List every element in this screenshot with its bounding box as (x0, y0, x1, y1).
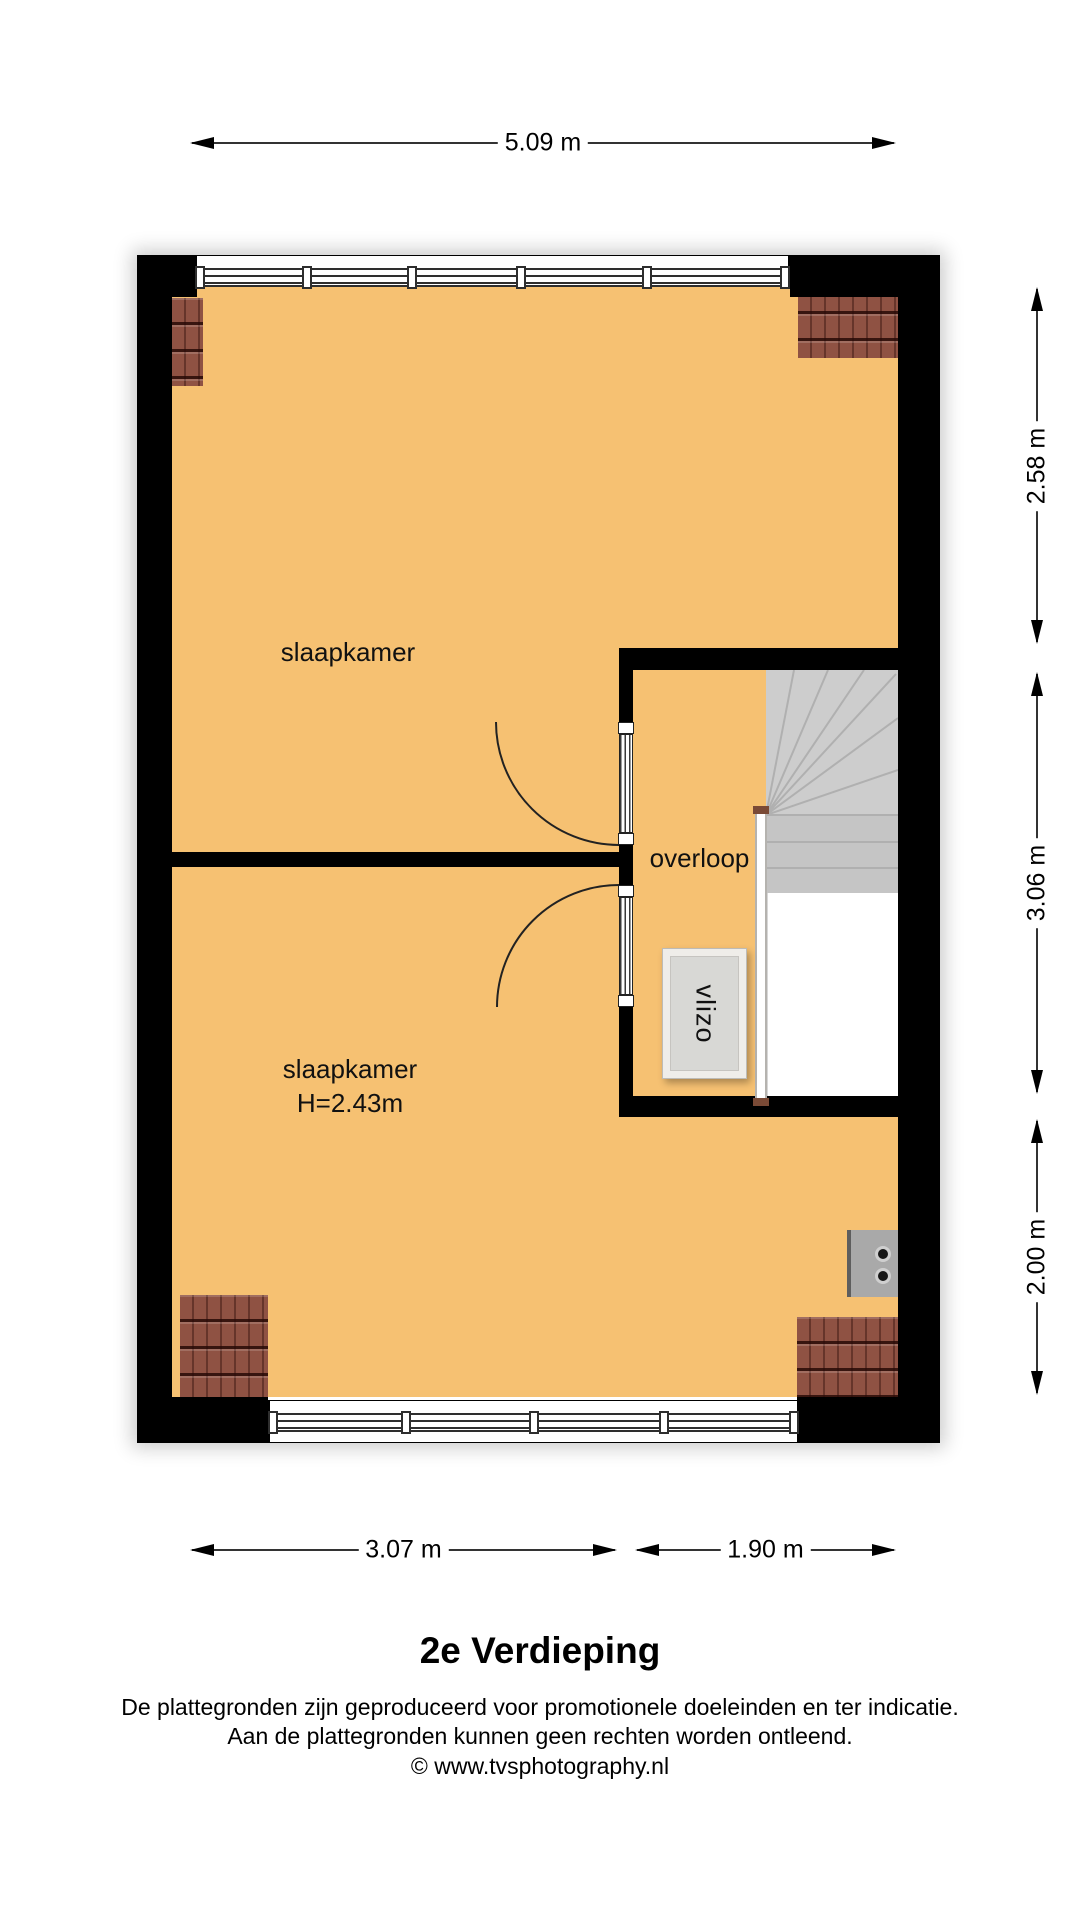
window-mullion (780, 266, 790, 289)
roof-tiles-top-left (172, 298, 203, 386)
bedroom-bottom-name: slaapkamer (200, 1053, 500, 1087)
bedroom-bottom-height-note: H=2.43m (200, 1087, 500, 1121)
wall-corner-bottom-right (797, 1397, 940, 1443)
dimension-right-top-label: 2.58 m (1023, 420, 1052, 510)
disclaimer-line-1: De plattegronden zijn geproduceerd voor … (0, 1694, 1080, 1721)
bedroom-top-floor-lower (172, 648, 633, 867)
roof-tiles-top-right (798, 287, 898, 358)
handrail-cap-bottom (753, 1098, 769, 1106)
dimension-right-middle: 3.06 m (1025, 670, 1049, 1096)
window-top (197, 268, 788, 287)
door-jamb (618, 885, 634, 897)
window-mullion (789, 1411, 799, 1434)
stairs-treads (766, 670, 898, 893)
loft-hatch-panel: vlizo (670, 956, 739, 1071)
dimension-right-middle-label: 3.06 m (1023, 838, 1052, 928)
window-mullion (407, 266, 417, 289)
bedroom-bottom-label: slaapkamer H=2.43m (200, 1053, 500, 1121)
page-title: 2e Verdieping (0, 1630, 1080, 1672)
wall-corner-top-left (137, 255, 197, 297)
window-mullion (195, 266, 205, 289)
wall-left (137, 255, 172, 1443)
wall-landing-stub-top (619, 670, 633, 722)
dimension-bottom-right: 1.90 m (633, 1538, 898, 1562)
loft-hatch-label: vlizo (689, 984, 720, 1043)
roof-tiles-bottom-left (180, 1295, 268, 1400)
window-mullion (268, 1411, 278, 1434)
wall-corner-top-right (790, 255, 940, 297)
dimension-right-top: 2.58 m (1025, 285, 1049, 646)
mechanical-unit-knob (875, 1268, 891, 1284)
copyright: © www.tvsphotography.nl (0, 1753, 1080, 1780)
dimension-right-bottom: 2.00 m (1025, 1117, 1049, 1397)
window-bottom (270, 1413, 797, 1432)
door-jamb (618, 833, 634, 845)
window-top-glazing (198, 275, 787, 284)
mechanical-unit-knob (875, 1246, 891, 1262)
loft-hatch: vlizo (662, 948, 747, 1079)
stairwell-void (766, 893, 898, 1096)
door-bottom-bedroom (619, 897, 633, 995)
dimension-top-width-label: 5.09 m (498, 129, 588, 158)
handrail-cap-top (753, 806, 769, 814)
disclaimer-line-2: Aan de plattegronden kunnen geen rechten… (0, 1723, 1080, 1750)
window-mullion (516, 266, 526, 289)
bedroom-top-label: slaapkamer (198, 636, 498, 670)
dimension-bottom-left: 3.07 m (188, 1538, 619, 1562)
stairs (766, 670, 898, 893)
window-mullion (302, 266, 312, 289)
wall-right (898, 255, 940, 1443)
dimension-right-bottom-label: 2.00 m (1023, 1212, 1052, 1302)
wall-bedroom-divider (172, 852, 633, 867)
window-mullion (401, 1411, 411, 1434)
mechanical-unit (847, 1230, 898, 1297)
floor-plan-page: 5.09 m (0, 0, 1080, 1920)
wall-landing-stub-middle (619, 845, 633, 885)
wall-landing-stub-bottom (619, 1007, 633, 1096)
door-jamb (618, 722, 634, 734)
bedroom-top-floor (172, 285, 898, 648)
window-mullion (529, 1411, 539, 1434)
wall-stair-top (619, 648, 898, 670)
dimension-bottom-right-label: 1.90 m (720, 1536, 810, 1565)
window-mullion (642, 266, 652, 289)
window-mullion (659, 1411, 669, 1434)
dimension-bottom-left-label: 3.07 m (358, 1536, 448, 1565)
door-jamb (618, 995, 634, 1007)
door-top-bedroom (619, 734, 633, 833)
dimension-top-width: 5.09 m (188, 131, 898, 155)
wall-corner-bottom-left (137, 1397, 268, 1443)
landing-label: overloop (633, 842, 766, 876)
roof-tiles-bottom-right (797, 1317, 898, 1402)
